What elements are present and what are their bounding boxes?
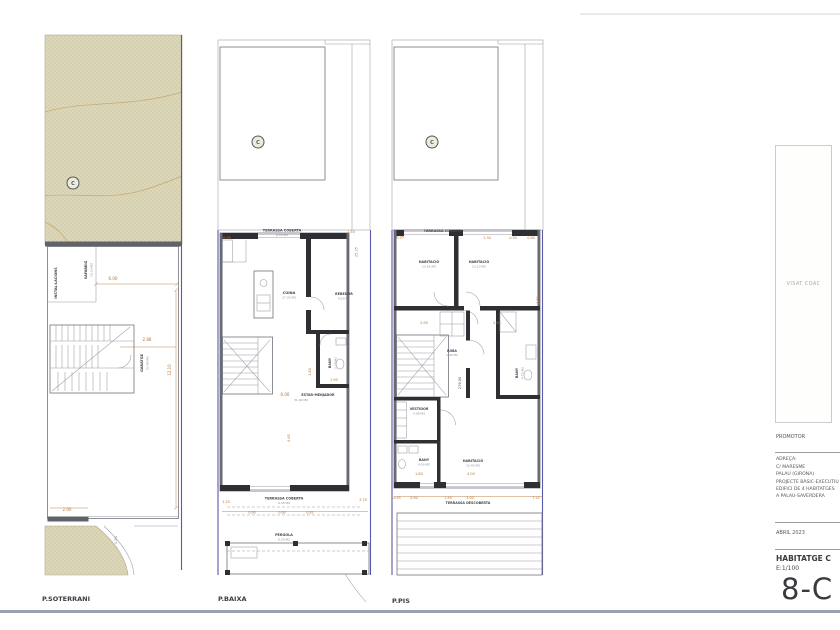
- svg-text:GARATGE: GARATGE: [140, 353, 144, 371]
- svg-text:53.90 M2: 53.90 M2: [146, 356, 150, 370]
- date-label: ABRIL 2023: [776, 530, 805, 536]
- svg-text:279.00: 279.00: [458, 377, 462, 389]
- pergola-outline: [227, 543, 369, 574]
- plan-label-baixa: P.BAIXA: [218, 595, 247, 603]
- plan-label-soterrani: P.SOTERRANI: [42, 595, 90, 603]
- svg-text:1.80: 1.80: [415, 472, 423, 476]
- address-line1: C/ MARESME: [776, 465, 805, 470]
- plans-svg: CINSTAL·LACIONSSAFAREIG10.10 M26.002.88G…: [0, 0, 840, 630]
- svg-text:BANY: BANY: [419, 458, 430, 462]
- svg-text:4.75 M2: 4.75 M2: [521, 367, 525, 379]
- svg-text:TERRASSA DESCOBERTA: TERRASSA DESCOBERTA: [446, 501, 491, 505]
- svg-text:0.95: 0.95: [223, 236, 231, 240]
- visat-stamp-text: VISAT COAC: [787, 281, 821, 287]
- svg-text:2.95: 2.95: [420, 321, 428, 325]
- svg-text:PERGOLA: PERGOLA: [275, 533, 293, 537]
- stairs-baixa: [223, 337, 273, 394]
- svg-text:4.5%: 4.5%: [114, 536, 118, 544]
- svg-text:SAFAREIG: SAFAREIG: [84, 260, 88, 279]
- svg-text:1.00: 1.00: [466, 496, 473, 500]
- terrain-hatch: [45, 35, 182, 244]
- svg-text:6.55 M2: 6.55 M2: [276, 233, 288, 237]
- svg-text:0.95: 0.95: [396, 236, 403, 240]
- svg-text:2.00: 2.00: [63, 507, 72, 512]
- svg-text:VESTIDOR: VESTIDOR: [410, 407, 429, 411]
- svg-text:6.00: 6.00: [109, 276, 118, 281]
- sheet-number: 8-C: [781, 572, 833, 606]
- stairs-pis: [397, 335, 449, 397]
- svg-text:BANY: BANY: [328, 357, 332, 368]
- svg-text:7.25: 7.25: [532, 496, 539, 500]
- svg-text:0.60: 0.60: [248, 511, 255, 515]
- svg-text:TERRASSA COBERTA: TERRASSA COBERTA: [263, 229, 302, 233]
- svg-text:12.10: 12.10: [167, 364, 172, 376]
- titleblock-rule: [775, 522, 840, 523]
- svg-text:6.20 M2: 6.20 M2: [278, 538, 290, 542]
- project-line2: EDIFICI DE 4 HABITATGES: [776, 487, 835, 492]
- project-line3: A PALAU-SAVERDERA: [776, 494, 825, 499]
- svg-text:1.95: 1.95: [444, 496, 451, 500]
- stairs-soterrani: [50, 325, 134, 393]
- svg-text:17.30 M2: 17.30 M2: [282, 296, 296, 300]
- dwelling-title: HABITATGE C: [776, 554, 831, 563]
- svg-text:31.90 M2: 31.90 M2: [294, 398, 308, 402]
- svg-text:2.85: 2.85: [493, 321, 501, 325]
- svg-text:1.40 M2: 1.40 M2: [446, 353, 458, 357]
- svg-text:0.90: 0.90: [527, 236, 534, 240]
- svg-text:1.80: 1.80: [308, 368, 312, 376]
- svg-text:0.60: 0.60: [278, 511, 285, 515]
- svg-text:15.40 M2: 15.40 M2: [466, 464, 480, 468]
- plan-soterrani: [45, 35, 182, 575]
- svg-text:C: C: [430, 140, 434, 146]
- svg-text:HABITACIÓ: HABITACIÓ: [469, 259, 490, 264]
- svg-text:0.95: 0.95: [393, 496, 400, 500]
- terrain-hatch-ramp: [45, 526, 128, 575]
- svg-text:4.50 M2: 4.50 M2: [338, 297, 350, 301]
- svg-text:25.35: 25.35: [355, 247, 359, 257]
- svg-text:4.00 M2: 4.00 M2: [418, 463, 430, 467]
- plan-baixa: [218, 40, 371, 602]
- visat-stamp-box: VISAT COAC: [775, 145, 832, 423]
- svg-text:0.82: 0.82: [306, 511, 313, 515]
- svg-text:3.70: 3.70: [359, 498, 367, 502]
- svg-text:ESTAR-MENJADOR: ESTAR-MENJADOR: [301, 393, 335, 397]
- svg-text:HABITACIÓ: HABITACIÓ: [419, 259, 440, 264]
- svg-text:1.25: 1.25: [222, 500, 230, 504]
- svg-text:INSTAL·LACIONS: INSTAL·LACIONS: [54, 267, 58, 299]
- svg-text:1.90: 1.90: [330, 378, 338, 382]
- project-line1: PROJECTE BÀSIC-EXECUTIU: [776, 480, 839, 485]
- titleblock-rule: [775, 452, 840, 453]
- svg-text:4.95: 4.95: [287, 434, 291, 442]
- address-line2: PALAU (GIRONA): [776, 472, 814, 477]
- svg-text:2.88: 2.88: [143, 337, 152, 342]
- titleblock-rule: [775, 549, 840, 550]
- promotor-label: PROMOTOR: [776, 434, 805, 440]
- plan-label-pis: P.PIS: [392, 597, 410, 605]
- address-label: ADREÇA:: [776, 457, 797, 462]
- svg-text:6.00: 6.00: [281, 392, 290, 397]
- svg-text:TERRASSA COBERTA: TERRASSA COBERTA: [424, 229, 463, 233]
- svg-text:2.30: 2.30: [483, 236, 490, 240]
- svg-text:BANY: BANY: [515, 367, 519, 378]
- svg-text:2.50: 2.50: [536, 296, 540, 303]
- svg-text:C: C: [71, 181, 75, 187]
- svg-text:4.08 M2: 4.08 M2: [413, 412, 425, 416]
- drawing-sheet: CINSTAL·LACIONSSAFAREIG10.10 M26.002.88G…: [0, 0, 840, 630]
- svg-text:4.35 M2: 4.35 M2: [278, 501, 290, 505]
- svg-text:0.90: 0.90: [410, 496, 417, 500]
- svg-text:CUINA: CUINA: [283, 291, 296, 295]
- svg-text:C: C: [256, 140, 260, 146]
- svg-text:13.55 M2: 13.55 M2: [422, 265, 436, 269]
- scale-label: E:1/100: [776, 565, 799, 572]
- svg-text:10.10 M2: 10.10 M2: [90, 263, 94, 277]
- plan-pis: [392, 40, 543, 575]
- svg-text:0.50: 0.50: [509, 236, 516, 240]
- svg-text:3.50 M2: 3.50 M2: [334, 357, 338, 369]
- svg-text:4.00: 4.00: [467, 472, 475, 476]
- svg-text:13.10 M2: 13.10 M2: [472, 265, 486, 269]
- svg-text:REBEDOR: REBEDOR: [335, 292, 353, 296]
- svg-text:TERRASSA COBERTA: TERRASSA COBERTA: [265, 497, 304, 501]
- garage-door: [48, 517, 89, 522]
- labels-baixa: CTERRASSA COBERTA6.55 M20.951.5025.35CUI…: [222, 140, 367, 542]
- svg-text:HABITACIÓ: HABITACIÓ: [463, 458, 484, 463]
- svg-text:1.50: 1.50: [347, 230, 355, 234]
